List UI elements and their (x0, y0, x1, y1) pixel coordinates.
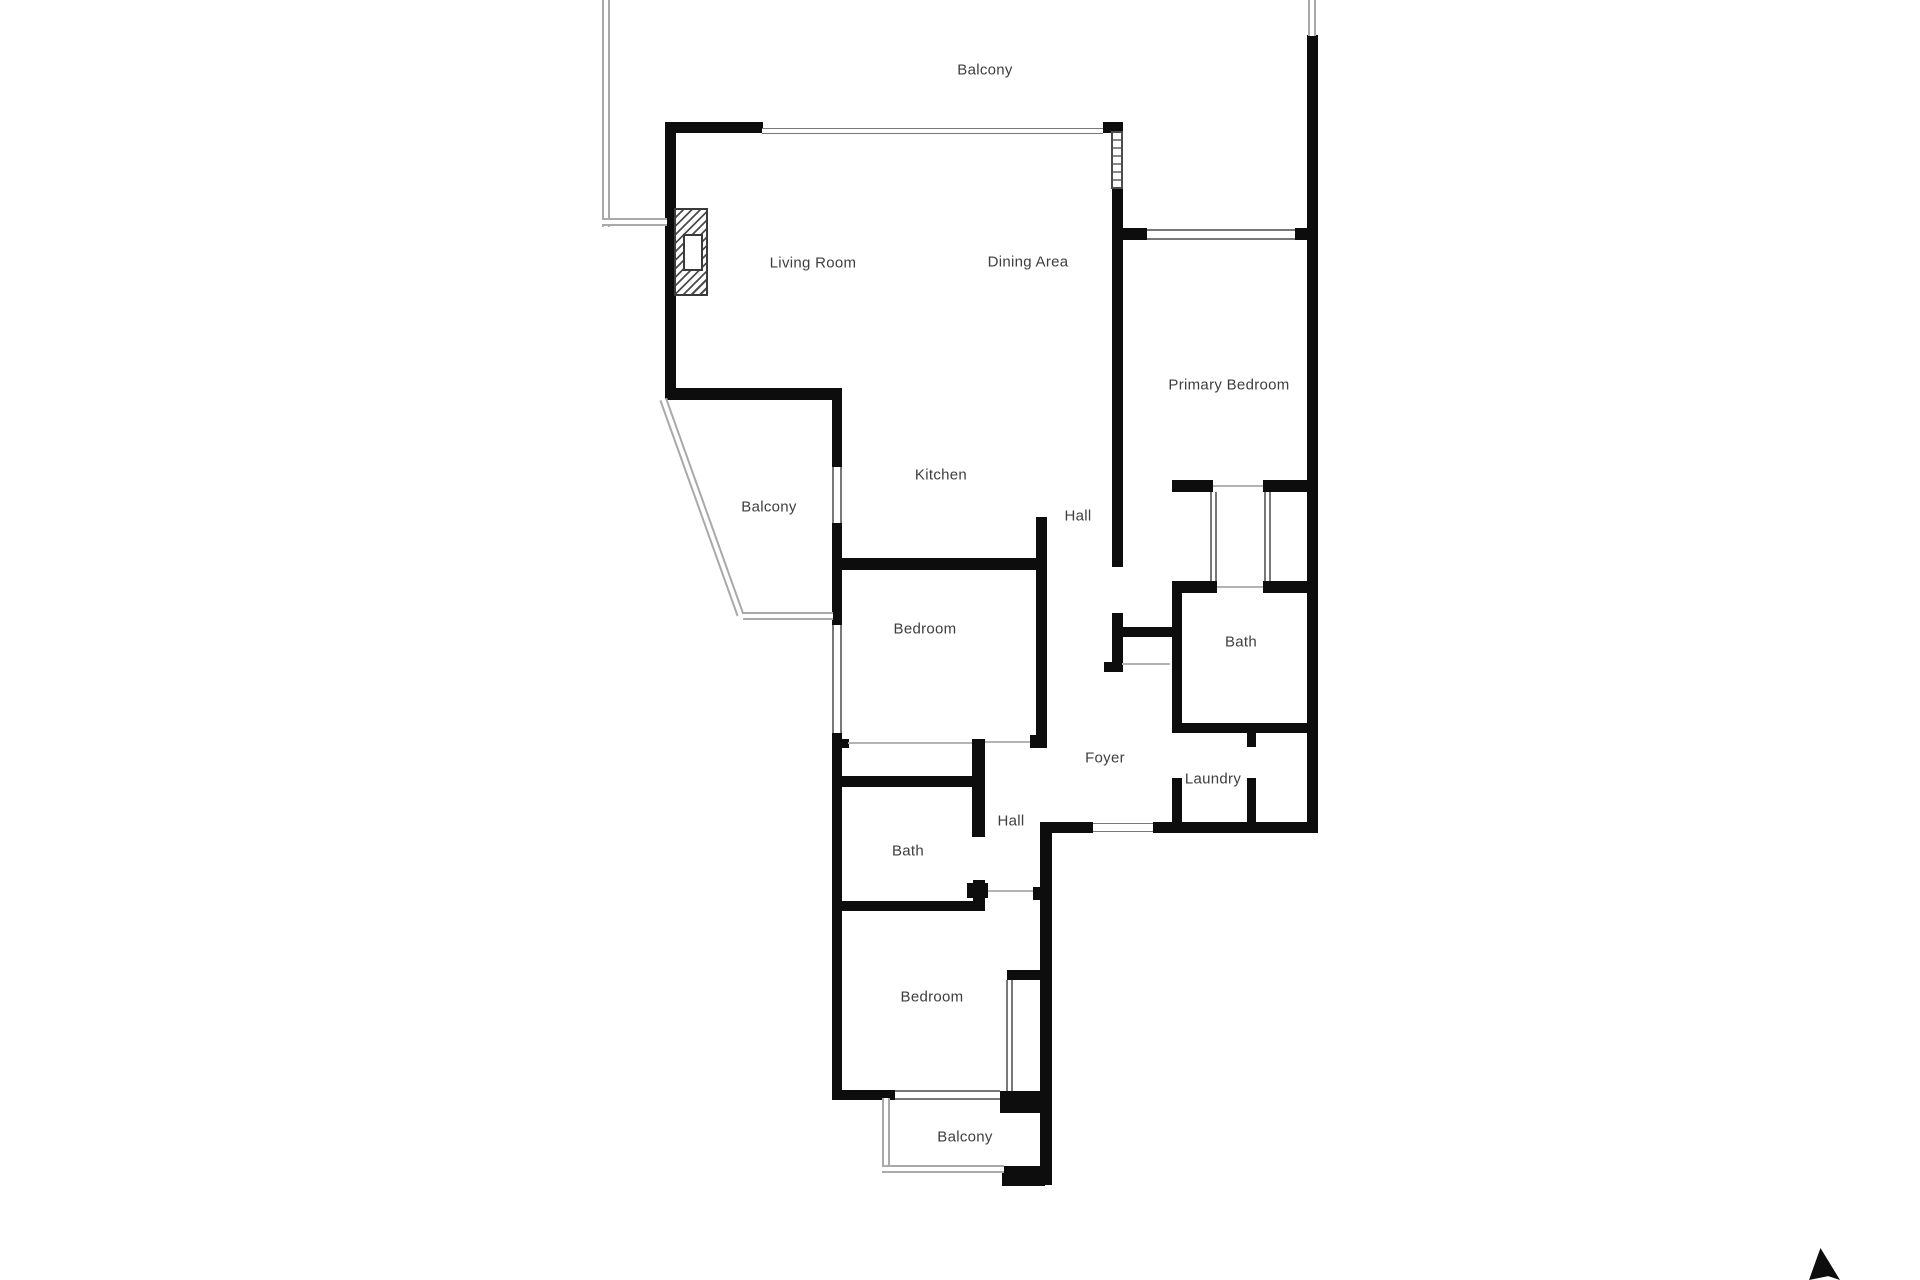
door-opening (985, 741, 1030, 743)
railing (659, 398, 744, 616)
room-label-kitchen: Kitchen (915, 467, 967, 484)
fireplace-firebox (683, 234, 703, 271)
door-opening (1217, 586, 1263, 588)
floor-plan: Balcony Living Room Dining Area Primary … (0, 0, 1920, 1280)
wall (665, 122, 763, 133)
window (1147, 229, 1295, 240)
room-label-balcony-lower: Balcony (937, 1129, 992, 1146)
closet-partition (1264, 492, 1271, 581)
door-opening (988, 890, 1033, 892)
wall (1112, 613, 1123, 670)
entry-door-opening (1093, 823, 1153, 832)
wall (972, 739, 985, 837)
wall (1112, 240, 1123, 567)
room-label-primary-bedroom: Primary Bedroom (1168, 377, 1289, 394)
wall (1112, 228, 1147, 240)
wall (1153, 822, 1318, 833)
wall (1172, 778, 1182, 828)
wall (1120, 627, 1174, 637)
closet-front (1006, 980, 1013, 1091)
room-label-balcony-left: Balcony (741, 499, 796, 516)
wall (1000, 1091, 1045, 1113)
room-label-bath-lower: Bath (892, 843, 924, 860)
window (832, 625, 842, 733)
wall (1172, 593, 1182, 733)
railing (1308, 0, 1316, 36)
wall (1040, 823, 1052, 1185)
wall (973, 880, 985, 901)
wall (1002, 1166, 1045, 1186)
wall (1172, 480, 1213, 492)
door-opening (1213, 485, 1263, 487)
wall (1036, 517, 1047, 747)
window (832, 467, 842, 523)
room-label-bath-primary: Bath (1225, 634, 1257, 651)
window (762, 128, 1103, 134)
closet-partition (1210, 492, 1217, 581)
door-opening (1122, 663, 1170, 665)
room-label-laundry: Laundry (1185, 771, 1241, 788)
wall (832, 733, 842, 1100)
wall (1007, 970, 1040, 980)
room-label-balcony-top: Balcony (957, 62, 1012, 79)
wall (1247, 723, 1256, 747)
room-label-foyer: Foyer (1085, 750, 1125, 767)
window (1111, 131, 1123, 189)
room-label-hall-upper: Hall (1064, 508, 1091, 525)
wall (832, 523, 842, 620)
wall (1172, 723, 1318, 733)
wall (840, 776, 973, 787)
wall (1172, 581, 1217, 593)
railing (882, 1098, 890, 1172)
wall (1307, 35, 1318, 833)
wall (1263, 581, 1307, 593)
wall (1030, 735, 1047, 748)
room-label-dining-area: Dining Area (988, 254, 1069, 271)
wall (832, 901, 985, 911)
railing (602, 218, 667, 226)
railing (882, 1165, 1004, 1173)
room-label-bedroom-lower: Bedroom (901, 989, 964, 1006)
room-label-living-room: Living Room (770, 255, 857, 272)
room-label-bedroom-middle: Bedroom (894, 621, 957, 638)
room-label-hall-lower: Hall (997, 813, 1024, 830)
wall (840, 558, 1038, 570)
closet-front (848, 742, 972, 744)
wall (1112, 188, 1123, 228)
wall (1040, 822, 1093, 833)
railing (602, 0, 610, 227)
wall (1263, 480, 1307, 492)
wall (665, 388, 842, 400)
wall (1247, 778, 1256, 828)
north-arrow-icon (1809, 1248, 1840, 1280)
railing (743, 612, 833, 620)
balcony-slider (895, 1090, 1000, 1100)
wall (832, 398, 842, 467)
